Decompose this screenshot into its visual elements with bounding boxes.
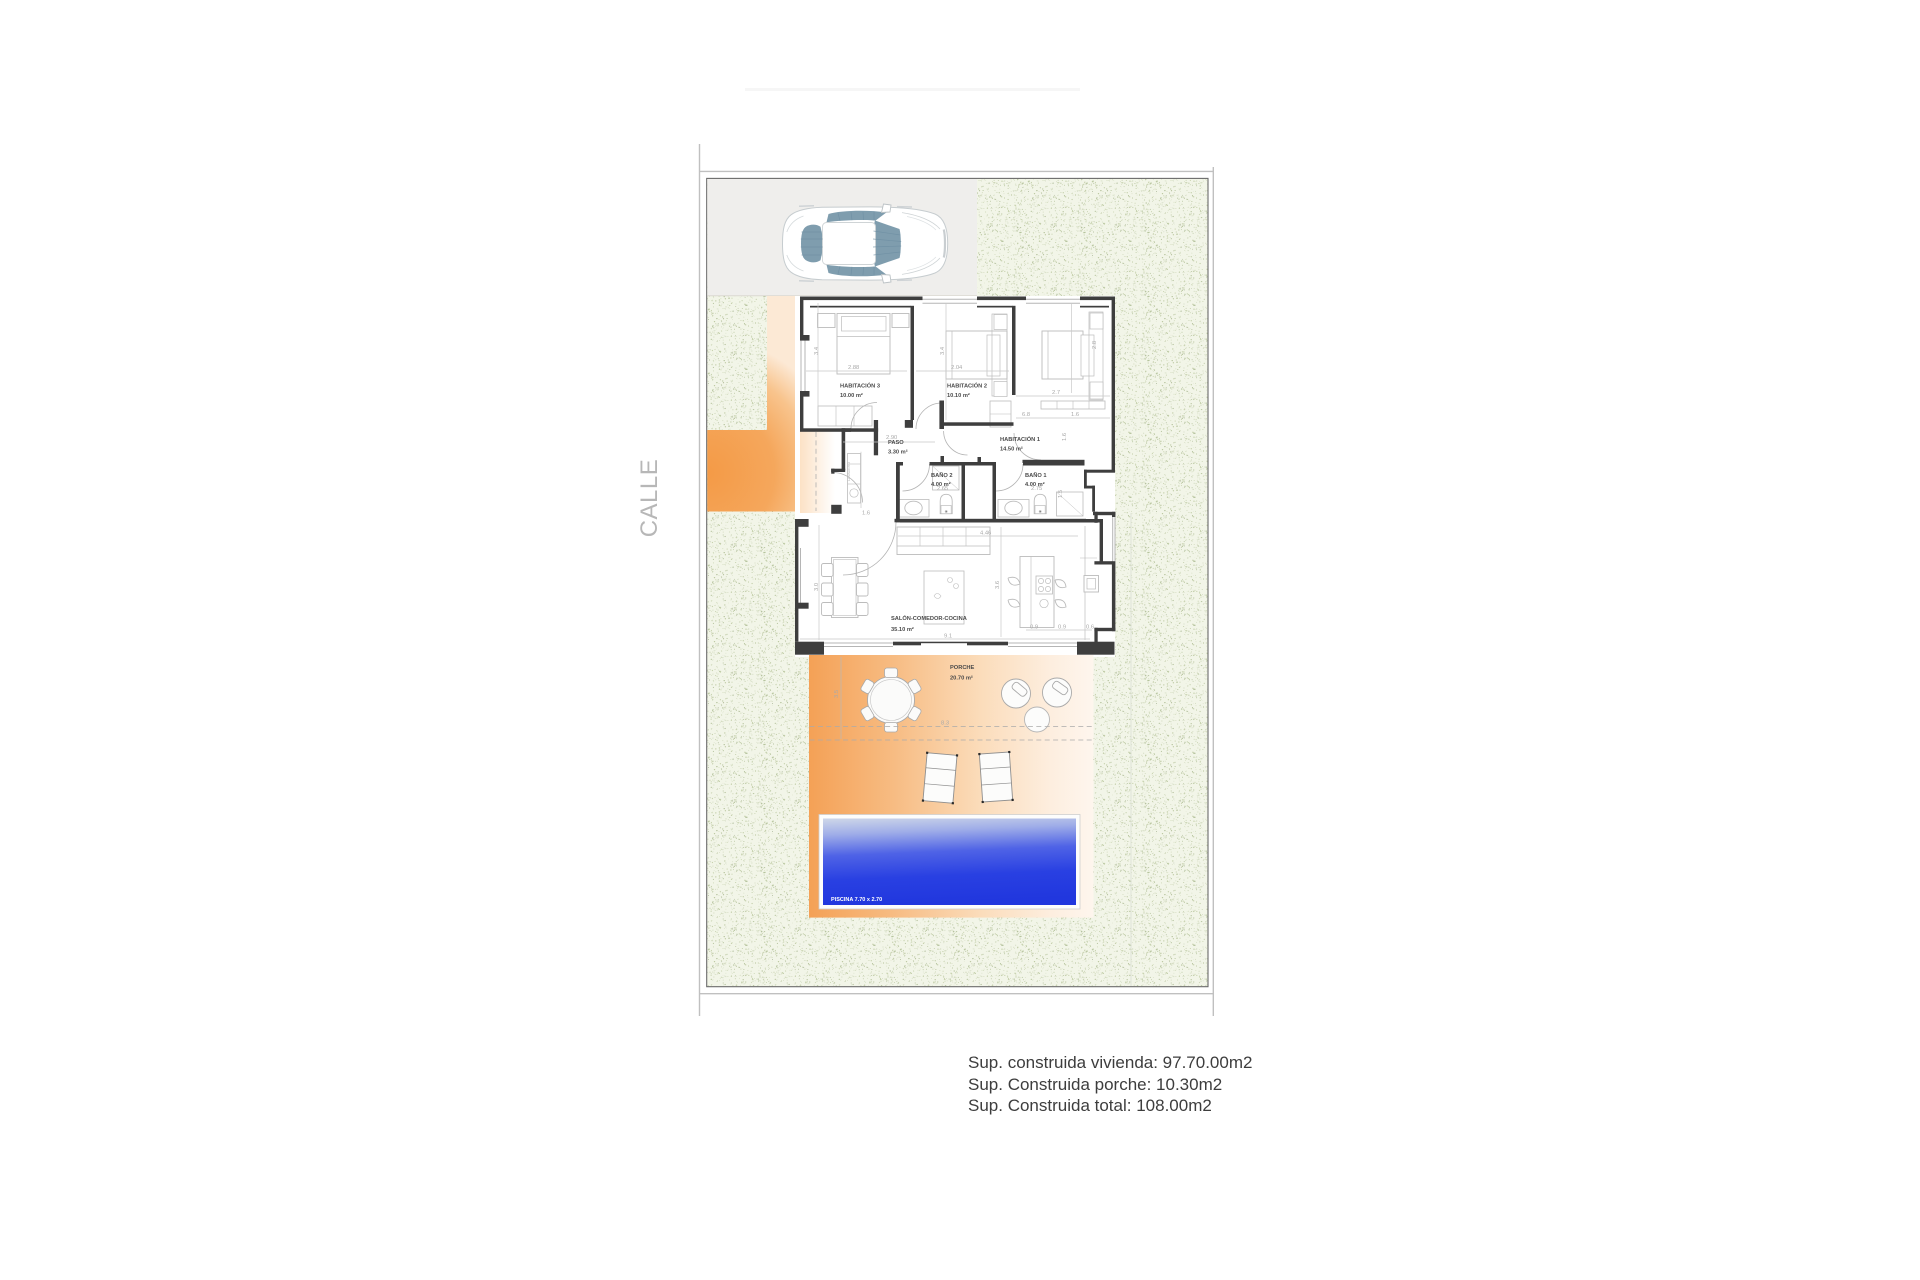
svg-text:2.65: 2.65 <box>937 486 948 492</box>
svg-text:10.10 m²: 10.10 m² <box>947 392 970 399</box>
svg-text:3.4: 3.4 <box>940 346 946 355</box>
svg-text:3.0: 3.0 <box>814 583 820 591</box>
svg-text:HABITACIÓN 1: HABITACIÓN 1 <box>1000 435 1040 443</box>
svg-text:0.9: 0.9 <box>1058 625 1066 631</box>
svg-text:14.50 m²: 14.50 m² <box>1000 446 1023 453</box>
svg-text:HABITACIÓN 3: HABITACIÓN 3 <box>840 382 880 390</box>
svg-text:0.9: 0.9 <box>1030 625 1038 631</box>
svg-text:3.4: 3.4 <box>814 346 820 355</box>
svg-text:9.1: 9.1 <box>944 634 952 640</box>
svg-text:PORCHE: PORCHE <box>950 665 975 671</box>
svg-text:1.5: 1.5 <box>1058 490 1064 498</box>
svg-text:2.8: 2.8 <box>1092 341 1098 349</box>
svg-text:20.70 m²: 20.70 m² <box>950 675 973 682</box>
svg-text:0.6: 0.6 <box>1086 625 1094 631</box>
svg-text:1.6: 1.6 <box>1071 412 1079 418</box>
svg-text:2.04: 2.04 <box>951 365 963 371</box>
svg-text:35.10 m²: 35.10 m² <box>891 626 914 633</box>
svg-text:2.90: 2.90 <box>886 435 897 441</box>
svg-text:10.00 m²: 10.00 m² <box>840 392 863 399</box>
svg-text:2.75: 2.75 <box>1031 486 1042 492</box>
svg-text:3.30 m²: 3.30 m² <box>888 449 908 456</box>
svg-text:BAÑO 2: BAÑO 2 <box>931 472 953 479</box>
svg-text:3.5: 3.5 <box>834 690 840 698</box>
svg-text:8.3: 8.3 <box>941 721 949 727</box>
svg-text:LAVADERO: LAVADERO <box>847 462 851 481</box>
svg-text:3.6: 3.6 <box>995 581 1001 589</box>
svg-text:1.6: 1.6 <box>1062 433 1068 441</box>
svg-text:1.6: 1.6 <box>862 511 870 517</box>
svg-text:2.88: 2.88 <box>848 365 859 371</box>
svg-text:6.8: 6.8 <box>1022 412 1030 418</box>
svg-text:2.7: 2.7 <box>1052 390 1060 396</box>
svg-text:PISCINA 7.70 x 2.70: PISCINA 7.70 x 2.70 <box>831 897 882 903</box>
svg-text:HABITACIÓN 2: HABITACIÓN 2 <box>947 382 987 390</box>
svg-text:4.46: 4.46 <box>980 531 991 537</box>
svg-text:BAÑO 1: BAÑO 1 <box>1025 472 1047 479</box>
svg-text:SALÓN-COMEDOR-COCINA: SALÓN-COMEDOR-COCINA <box>891 614 967 622</box>
